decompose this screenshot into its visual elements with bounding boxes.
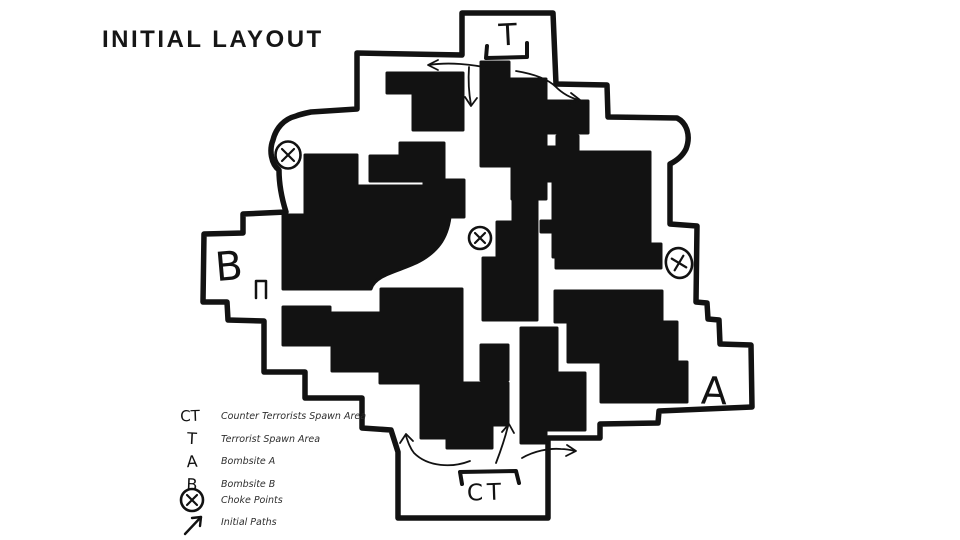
initial-path-arrow: [496, 424, 514, 463]
legend-label: Initial Paths: [221, 517, 277, 528]
wall-block: [421, 383, 508, 448]
initial-path-arrow: [465, 67, 477, 106]
initial-path-icon: [185, 517, 201, 534]
choke-point-icon: [276, 142, 301, 169]
t-spawn-area: T: [486, 18, 527, 58]
choke-point-icon: [663, 245, 695, 280]
legend: CT Counter Terrorists Spawn Area T Terro…: [180, 407, 366, 534]
legend-symbol-a: A: [186, 452, 198, 472]
site-b-label: B: [213, 243, 244, 291]
ct-spawn-label: CT: [467, 479, 506, 506]
ct-spawn-area: CT: [460, 471, 519, 507]
legend-item: Choke Points: [181, 489, 283, 511]
sketch-canvas: INITIAL LAYOUT T: [0, 0, 960, 540]
t-spawn-label: T: [497, 18, 519, 54]
legend-symbol-t: T: [186, 429, 198, 449]
wall-block: [332, 289, 462, 383]
site-a-label: A: [700, 369, 728, 414]
choke-point-icon: [181, 489, 203, 511]
legend-label: Choke Points: [221, 495, 283, 506]
wall-block: [483, 193, 537, 320]
wall-block: [370, 143, 444, 181]
wall-block: [481, 345, 508, 380]
doorway-notch: [256, 281, 266, 298]
legend-item: Initial Paths: [185, 517, 277, 534]
legend-symbol-ct: CT: [180, 407, 201, 426]
legend-item: A Bombsite A: [186, 452, 275, 472]
legend-label: Bombsite B: [221, 479, 275, 490]
page-title: INITIAL LAYOUT: [102, 26, 324, 53]
wall-block: [387, 73, 463, 130]
wall-block: [541, 152, 661, 268]
legend-label: Terrorist Spawn Area: [221, 434, 320, 445]
legend-label: Counter Terrorists Spawn Area: [221, 411, 366, 422]
wall-block: [283, 307, 330, 345]
legend-item: T Terrorist Spawn Area: [186, 429, 321, 449]
legend-label: Bombsite A: [221, 456, 275, 467]
level-sketch-svg: INITIAL LAYOUT T: [0, 0, 960, 540]
legend-item: CT Counter Terrorists Spawn Area: [180, 407, 366, 426]
choke-point-icon: [469, 227, 491, 249]
